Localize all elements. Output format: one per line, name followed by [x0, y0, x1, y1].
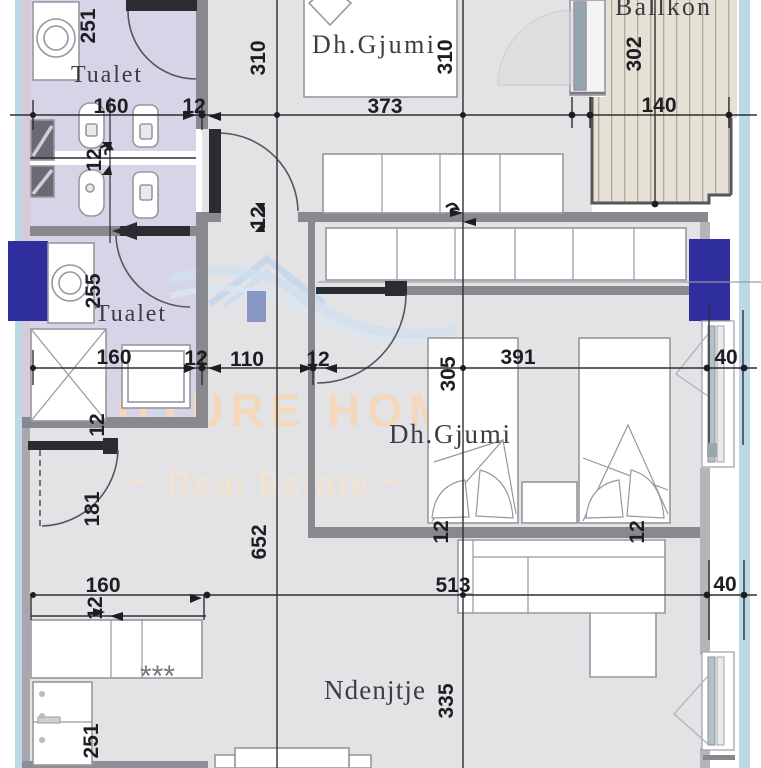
svg-text:160: 160	[85, 574, 120, 597]
svg-text:12: 12	[430, 520, 453, 543]
svg-text:12: 12	[306, 348, 329, 371]
svg-text:–: –	[380, 461, 398, 497]
svg-text:140: 140	[641, 94, 676, 117]
svg-text:Real Estate: Real Estate	[167, 466, 369, 502]
svg-text:40: 40	[713, 573, 736, 596]
svg-text:Ndenjtje: Ndenjtje	[324, 675, 425, 705]
svg-text:***: ***	[140, 660, 175, 693]
svg-text:12: 12	[84, 596, 107, 619]
svg-text:391: 391	[500, 346, 535, 369]
svg-text:160: 160	[93, 95, 128, 118]
svg-text:12: 12	[182, 95, 205, 118]
svg-text:12: 12	[247, 206, 270, 229]
svg-text:12: 12	[626, 520, 649, 543]
svg-text:335: 335	[435, 683, 458, 718]
svg-text:Tualet: Tualet	[71, 62, 141, 88]
svg-text:513: 513	[435, 574, 470, 597]
svg-text:310: 310	[247, 40, 270, 75]
svg-text:12: 12	[83, 148, 106, 171]
svg-text:Tualet: Tualet	[95, 301, 165, 327]
svg-text:181: 181	[81, 491, 104, 526]
svg-text:12: 12	[184, 347, 207, 370]
svg-text:12: 12	[86, 413, 109, 436]
svg-text:373: 373	[367, 95, 402, 118]
svg-text:Dh.Gjumi: Dh.Gjumi	[312, 30, 434, 59]
svg-text:40: 40	[714, 346, 737, 369]
svg-text:110: 110	[230, 348, 264, 371]
svg-text:302: 302	[623, 36, 646, 71]
svg-text:251: 251	[80, 723, 103, 758]
svg-text:251: 251	[77, 8, 100, 43]
svg-text:652: 652	[248, 524, 271, 559]
svg-text:305: 305	[437, 356, 460, 391]
svg-text:160: 160	[96, 346, 131, 369]
svg-text:310: 310	[434, 39, 457, 74]
svg-text:Dh.Gjumi: Dh.Gjumi	[389, 419, 510, 449]
svg-text:–: –	[130, 461, 148, 497]
